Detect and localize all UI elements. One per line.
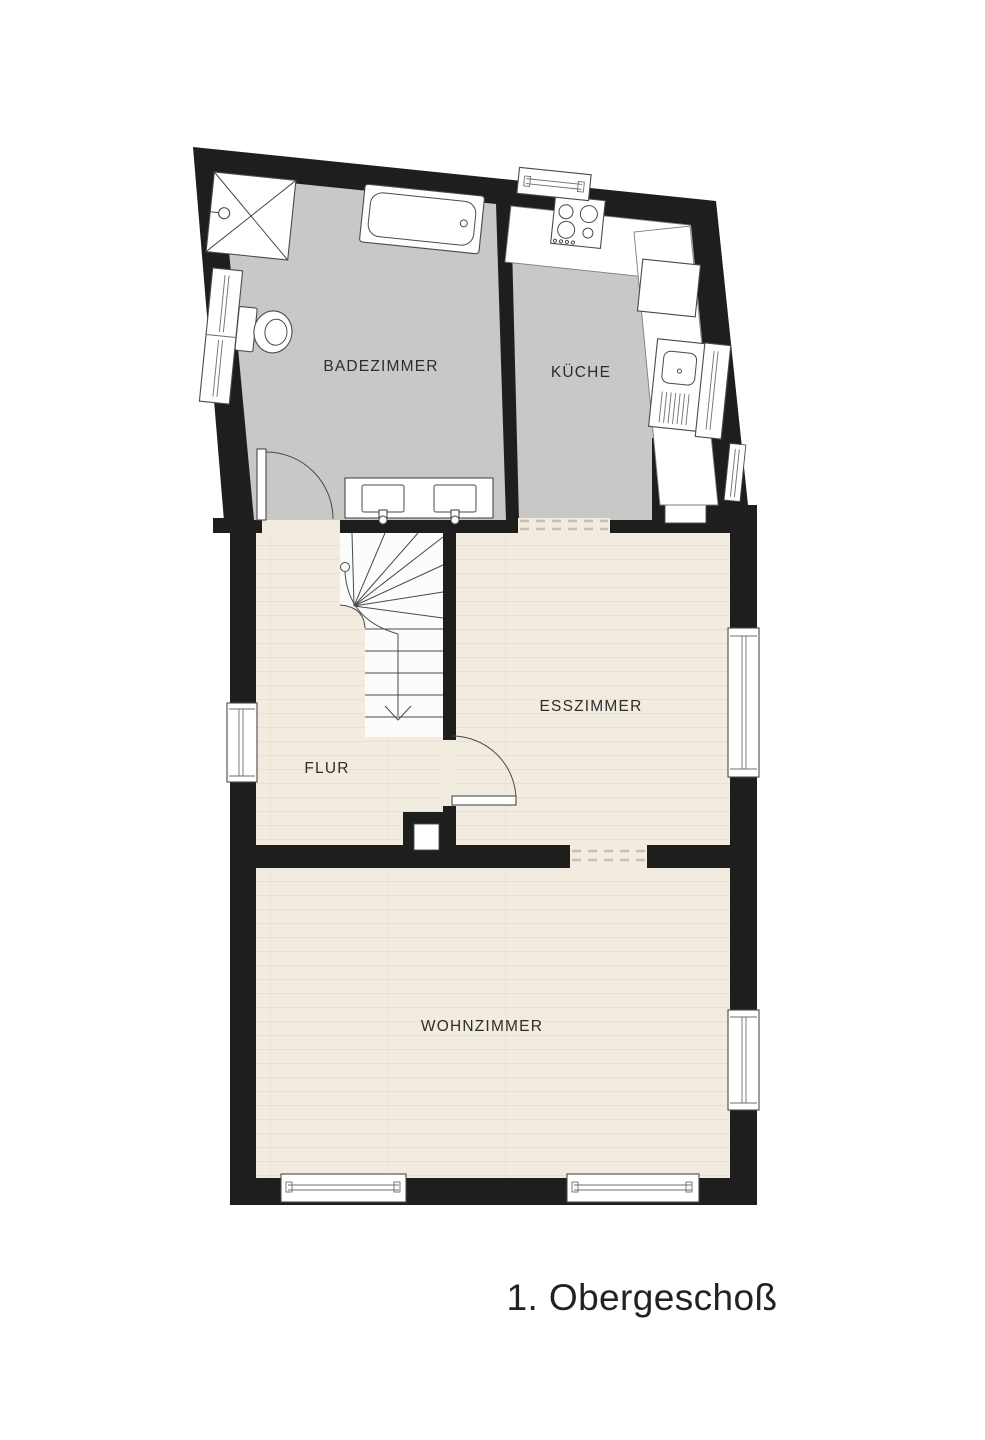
- floor-title: 1. Obergeschoß: [507, 1277, 778, 1318]
- wohnzimmer-right-window: [728, 1010, 759, 1110]
- bathtub: [359, 184, 484, 254]
- room-label-badezimmer: BADEZIMMER: [323, 358, 438, 375]
- shower-head-icon: [218, 207, 230, 219]
- bath-bottom-wall-left: [213, 518, 262, 533]
- wohnzimmer-bottom-window-1: [281, 1174, 406, 1202]
- floorplan-page: BADEZIMMER KÜCHE FLUR ESSZIMMER WOHNZIMM…: [0, 0, 985, 1440]
- left-wall: [230, 512, 256, 1205]
- shower: [206, 172, 296, 260]
- stair-wall: [443, 518, 456, 740]
- kitchen-appliance-box: [637, 259, 700, 317]
- room-label-wohnzimmer: WOHNZIMMER: [421, 1018, 543, 1035]
- passage-esszimmer-wohnzimmer: [570, 845, 647, 868]
- passage-kueche-esszimmer: [518, 518, 610, 533]
- floor-plan-canvas: BADEZIMMER KÜCHE FLUR ESSZIMMER WOHNZIMM…: [0, 0, 985, 1440]
- esszimmer-right-window: [728, 628, 759, 777]
- room-label-flur: FLUR: [304, 760, 349, 777]
- room-label-esszimmer: ESSZIMMER: [540, 698, 643, 715]
- bath-bottom-wall-right: [340, 518, 443, 533]
- flue-pillar-opening: [414, 824, 439, 850]
- wohnzimmer-bottom-window-2: [567, 1174, 699, 1202]
- room-label-kueche: KÜCHE: [551, 363, 611, 381]
- flur-left-window: [227, 703, 257, 782]
- badezimmer-door-threshold: [262, 520, 340, 533]
- mid-wall-wohnzimmer: [256, 845, 730, 868]
- stove: [551, 196, 606, 249]
- double-sink-vanity: [345, 478, 493, 524]
